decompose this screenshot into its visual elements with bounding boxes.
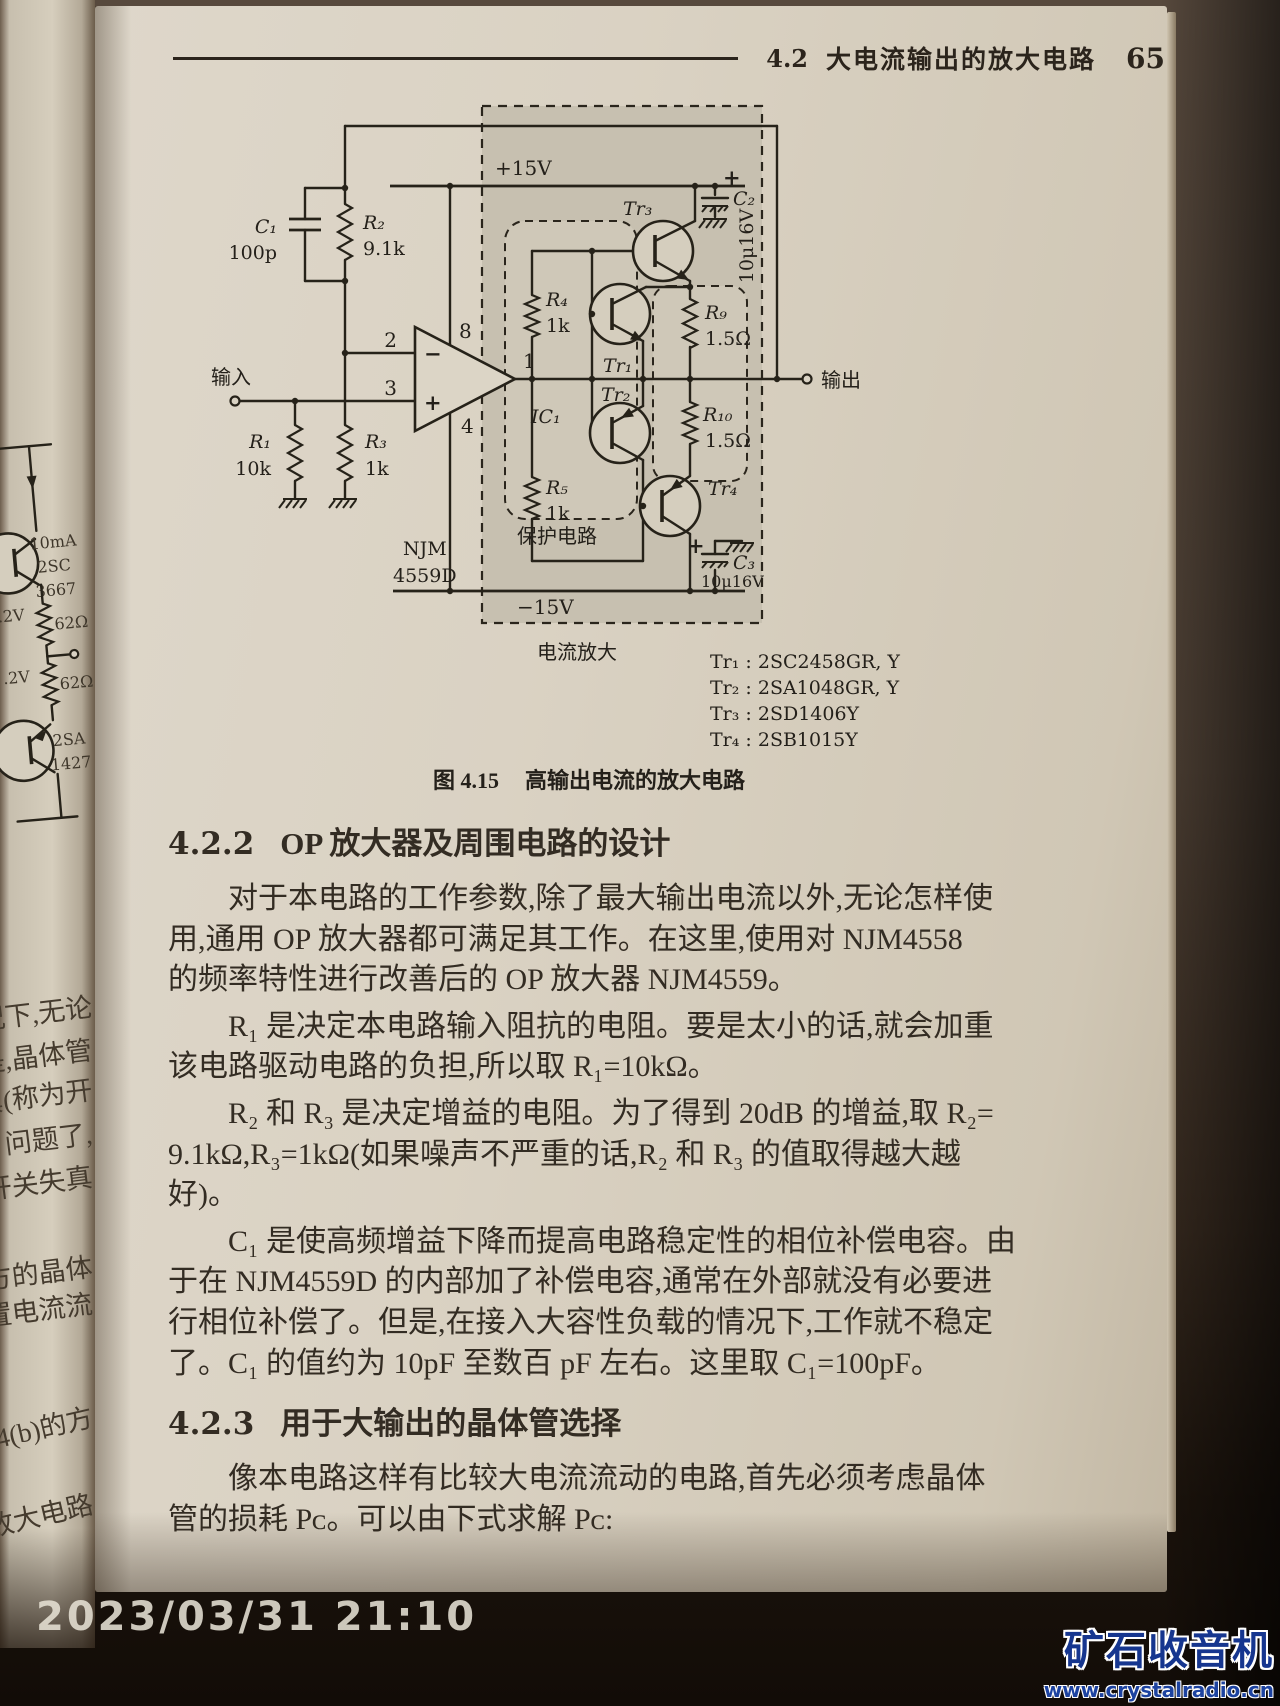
label-r3-value: 1k	[365, 458, 389, 480]
book-photo: 10mA 2SC 3667 .2V 62Ω .2V 62Ω 2SA	[0, 0, 1280, 1706]
label-tr-bot: 2SA	[52, 728, 87, 750]
ground-icon	[329, 499, 357, 508]
tr-list-line: Tr₃ : 2SD1406Y	[710, 703, 860, 725]
label-pin8: 8	[459, 319, 472, 343]
paragraph-line: 对于本电路的工作参数,除了最大输出电流以外,无论怎样使	[168, 879, 1153, 920]
label-4559d: 4559D	[393, 565, 457, 587]
label-pin4: 4	[461, 414, 474, 438]
label-tr-top: 2SC	[37, 555, 72, 577]
heading-title: OP 放大器及周围电路的设计	[280, 826, 670, 861]
label-v2: .2V	[2, 667, 31, 688]
heading-number: 4.2.3	[168, 1406, 254, 1442]
label-c1-value: 100p	[229, 242, 277, 264]
label-c2: C₂	[733, 188, 755, 210]
label-njm: NJM	[403, 538, 447, 560]
paragraph-line: 用,通用 OP 放大器都可满足其工作。在这里,使用对 NJM4558	[168, 920, 1153, 961]
header-rule	[173, 57, 738, 60]
header-section-number: 4.2	[766, 44, 808, 73]
paragraph-line: C₁ 是使高频增益下降而提高电路稳定性的相位补偿电容。由	[168, 1222, 1153, 1263]
label-opamp-plus: +	[424, 390, 442, 415]
label-plus15v: +15V	[495, 156, 552, 180]
label-c1: C₁	[255, 216, 277, 238]
input-terminal-icon	[231, 397, 240, 406]
watermark-title: 矿石收音机	[1044, 1618, 1274, 1676]
label-c2-value: 10μ16V	[736, 209, 758, 284]
heading-number: 4.2.2	[168, 826, 254, 862]
paragraph-line: 于在 NJM4559D 的内部加了补偿电容,通常在外部就没有必要进	[168, 1262, 1153, 1303]
label-r9: R₉	[704, 302, 727, 324]
label-r2: R₂	[362, 212, 385, 234]
transistor-tr3-icon	[633, 221, 693, 281]
label-r1-value: 10k	[235, 458, 271, 480]
output-terminal-icon	[803, 375, 812, 384]
label-tr1: Tr₁	[603, 355, 632, 377]
label-current: 10mA	[29, 530, 78, 553]
watermark: 矿石收音机 www.crystalradio.cn	[1044, 1618, 1274, 1702]
label-res1: 62Ω	[54, 612, 89, 634]
paragraph: R₁ 是决定本电路输入阻抗的电阻。要是太小的话,就会加重 该电路驱动电路的负担,…	[168, 1007, 1153, 1088]
paragraph-line: 行相位补偿了。但是,在接入大容性负载的情况下,工作就不稳定	[168, 1303, 1153, 1344]
paragraph-line: 像本电路这样有比较大电流流动的电路,首先必须考虑晶体	[168, 1459, 1153, 1500]
label-protection: 保护电路	[517, 525, 597, 548]
header-section-title: 大电流输出的放大电路	[826, 40, 1096, 76]
tr-list-line: Tr₁ : 2SC2458GR, Y	[710, 651, 900, 673]
section-heading-4-2-3: 4.2.3用于大输出的晶体管选择	[168, 1398, 1153, 1443]
label-current-amp: 电流放大	[537, 641, 617, 664]
label-r2-value: 9.1k	[363, 238, 405, 260]
paragraph-line: 该电路驱动电路的负担,所以取 R₁=10kΩ。	[168, 1047, 1153, 1088]
page-bottom-shadow	[95, 1512, 1167, 1592]
label-r10-value: 1.5Ω	[705, 430, 751, 452]
figure-caption-title: 高输出电流的放大电路	[525, 768, 746, 793]
label-ic1: IC₁	[530, 406, 561, 428]
label-r5: R₅	[545, 477, 568, 499]
tr-list-line: Tr₂ : 2SA1048GR, Y	[710, 677, 900, 699]
label-c2-plus: +	[723, 165, 741, 190]
paragraph-line: 的频率特性进行改善后的 OP 放大器 NJM4559。	[168, 960, 1153, 1001]
label-minus15v: −15V	[517, 595, 574, 619]
figure-4-15: − + 2 3 8 4 1 IC₁ NJM 4559D C₁ 100p R₂ 9…	[165, 91, 1165, 806]
label-c3-value: 10μ16V	[701, 572, 764, 591]
heading-title: 用于大输出的晶体管选择	[280, 1406, 621, 1441]
page-number: 65	[1126, 42, 1165, 75]
transistor-tr1-icon	[590, 284, 650, 344]
figure-caption-number: 图 4.15	[433, 768, 499, 793]
ground-icon	[279, 499, 307, 508]
facing-page-strip: 10mA 2SC 3667 .2V 62Ω .2V 62Ω 2SA	[0, 0, 95, 1648]
paragraph-line: 了。C₁ 的值约为 10pF 至数百 pF 左右。这里取 C₁=100pF。	[168, 1344, 1153, 1385]
paragraph-line: R₂ 和 R₃ 是决定增益的电阻。为了得到 20dB 的增益,取 R₂=	[168, 1094, 1153, 1135]
label-tr3: Tr₃	[623, 198, 652, 220]
gutter-shadow	[95, 6, 131, 1592]
label-v1: .2V	[0, 605, 26, 626]
transistor-tr2-icon	[590, 403, 650, 463]
section-heading-4-2-2: 4.2.2OP 放大器及周围电路的设计	[168, 818, 1153, 863]
label-c3: C₃	[733, 552, 755, 574]
body-text: 4.2.2OP 放大器及周围电路的设计 对于本电路的工作参数,除了最大输出电流以…	[168, 818, 1153, 1546]
label-r3: R₃	[364, 431, 387, 453]
camera-timestamp: 2023/03/31 21:10	[36, 1594, 477, 1640]
paragraph: R₂ 和 R₃ 是决定增益的电阻。为了得到 20dB 的增益,取 R₂= 9.1…	[168, 1094, 1153, 1216]
facing-page-text: 问题了,	[3, 1112, 95, 1161]
label-tr4: Tr₄	[708, 478, 737, 500]
label-r4-value: 1k	[546, 315, 570, 337]
page-header: 4.2 大电流输出的放大电路 65	[173, 40, 1165, 76]
label-tr2: Tr₂	[601, 384, 630, 406]
resistor-r3-icon	[338, 425, 352, 481]
label-output: 输出	[821, 369, 861, 392]
label-r5-value: 1k	[546, 503, 570, 525]
transistor-tr4-icon	[640, 476, 700, 536]
paragraph: 对于本电路的工作参数,除了最大输出电流以外,无论怎样使 用,通用 OP 放大器都…	[168, 879, 1153, 1001]
facing-page-text: 开关失真	[0, 1155, 94, 1207]
book-page: 4.2 大电流输出的放大电路 65	[95, 6, 1167, 1592]
label-opamp-minus: −	[424, 341, 442, 366]
facing-page-text: 4(b)的方	[0, 1395, 95, 1455]
capacitor-c1-icon	[289, 219, 321, 230]
label-c3-plus: +	[687, 533, 705, 558]
label-r9-value: 1.5Ω	[705, 328, 751, 350]
label-r1: R₁	[248, 431, 271, 453]
label-r4: R₄	[545, 289, 568, 311]
resistor-r2-icon	[338, 204, 352, 260]
label-res2: 62Ω	[59, 672, 94, 694]
label-input: 输入	[211, 366, 251, 389]
label-pin2: 2	[384, 328, 397, 352]
label-pin3: 3	[384, 376, 397, 400]
paragraph-line: R₁ 是决定本电路输入阻抗的电阻。要是太小的话,就会加重	[168, 1007, 1153, 1048]
resistor-r1-icon	[288, 425, 302, 481]
facing-page-circuit: 10mA 2SC 3667 .2V 62Ω .2V 62Ω 2SA	[0, 418, 95, 848]
tr-list-line: Tr₄ : 2SB1015Y	[710, 729, 858, 751]
label-pin1: 1	[523, 349, 536, 373]
paragraph-line: 好)。	[168, 1175, 1153, 1216]
paragraph: C₁ 是使高频增益下降而提高电路稳定性的相位补偿电容。由 于在 NJM4559D…	[168, 1222, 1153, 1384]
label-r10: R₁₀	[702, 404, 733, 426]
paragraph-line: 9.1kΩ,R₃=1kΩ(如果噪声不严重的话,R₂ 和 R₃ 的值取得越大越	[168, 1135, 1153, 1176]
current-arrow-icon	[27, 476, 38, 490]
watermark-url: www.crystalradio.cn	[1044, 1678, 1274, 1702]
table-shadow	[1160, 0, 1280, 1706]
page-edges	[1167, 12, 1176, 1532]
label-tr-bot2: 1427	[50, 752, 92, 774]
